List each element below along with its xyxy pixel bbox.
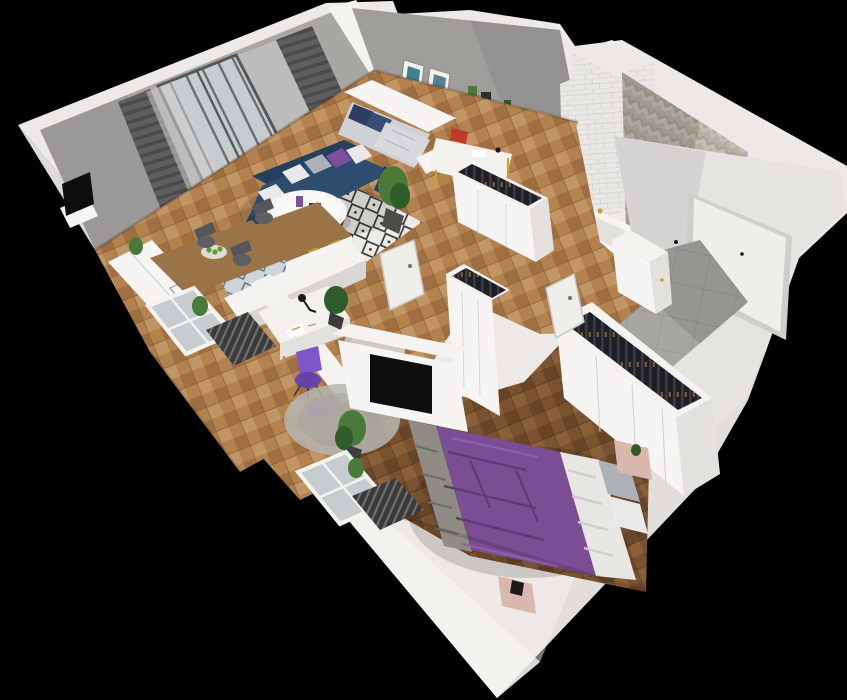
windowsill-plant — [192, 296, 208, 316]
potted-plant — [390, 183, 410, 209]
bathtub-faucet — [597, 208, 602, 213]
chair-seat — [233, 254, 251, 266]
apples — [217, 246, 222, 251]
apples — [212, 249, 217, 254]
door-peephole — [740, 252, 744, 256]
vase — [296, 196, 303, 207]
chair-seat — [255, 212, 273, 224]
cabinet-knob — [660, 278, 664, 282]
potted-plant — [324, 286, 348, 314]
door-handle — [568, 296, 572, 300]
windowsill-plant — [348, 458, 364, 478]
chair-seat — [197, 236, 215, 248]
door-lock — [674, 240, 678, 244]
apples — [206, 247, 211, 252]
purple-chair-seat — [295, 372, 321, 388]
nightstand-plant — [631, 444, 641, 456]
desk-lamp — [495, 147, 500, 152]
desk-papers — [472, 150, 486, 157]
potted-plant — [335, 426, 353, 450]
counter-plant — [129, 237, 143, 255]
floorplan-render — [0, 0, 847, 700]
door-handle — [408, 264, 412, 268]
apartment-cutaway-scene — [0, 0, 847, 700]
